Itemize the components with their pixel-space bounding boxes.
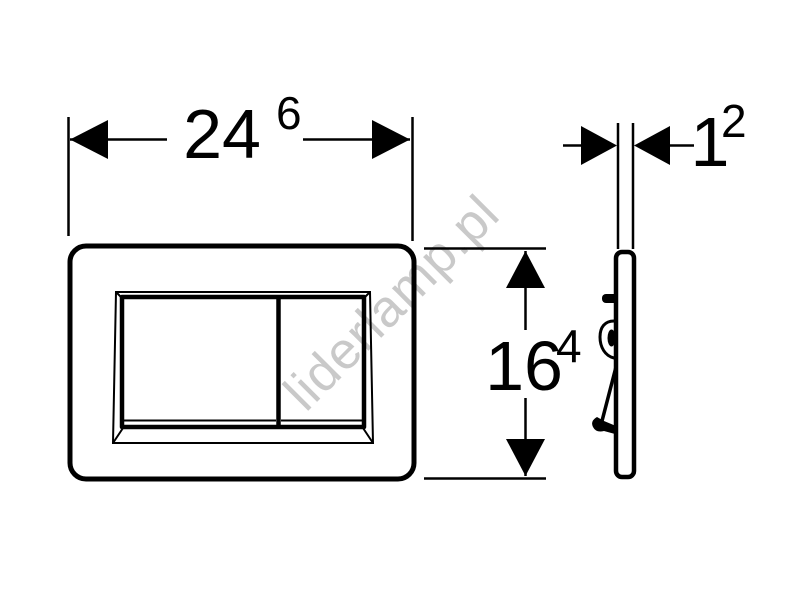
dimension-height-sup: 4: [556, 320, 582, 372]
technical-drawing-canvas: liderlamp.pl: [0, 0, 800, 600]
dimension-height-value: 16: [485, 327, 563, 405]
recess-bevel-bottom-left: [113, 428, 123, 443]
flush-buttons-frame: [122, 297, 364, 427]
dimension-depth-sup: 2: [721, 95, 747, 147]
dimension-depth: 1 2: [563, 95, 747, 249]
arrow-left-icon: [70, 120, 108, 159]
arrow-right-icon: [372, 120, 410, 159]
dimension-width-sup: 6: [276, 87, 302, 139]
dimension-width-value: 24: [183, 95, 261, 173]
flush-plate-drawing: 24 6 16 4 1 2: [0, 0, 800, 600]
arrow-up-icon: [506, 251, 545, 288]
front-view: [70, 246, 414, 479]
plate-profile: [616, 252, 634, 477]
side-view: [592, 252, 634, 477]
dimension-height: 16 4: [424, 249, 582, 479]
button-recess: [113, 292, 373, 443]
dimension-width: 24 6: [69, 87, 413, 241]
recess-bevel-bottom-right: [363, 428, 373, 443]
arrow-down-icon: [506, 439, 545, 476]
arrow-inward-right-icon: [634, 126, 670, 165]
mounting-tab: [602, 294, 618, 303]
arrow-inward-left-icon: [581, 126, 617, 165]
clip-detail: [608, 330, 616, 347]
